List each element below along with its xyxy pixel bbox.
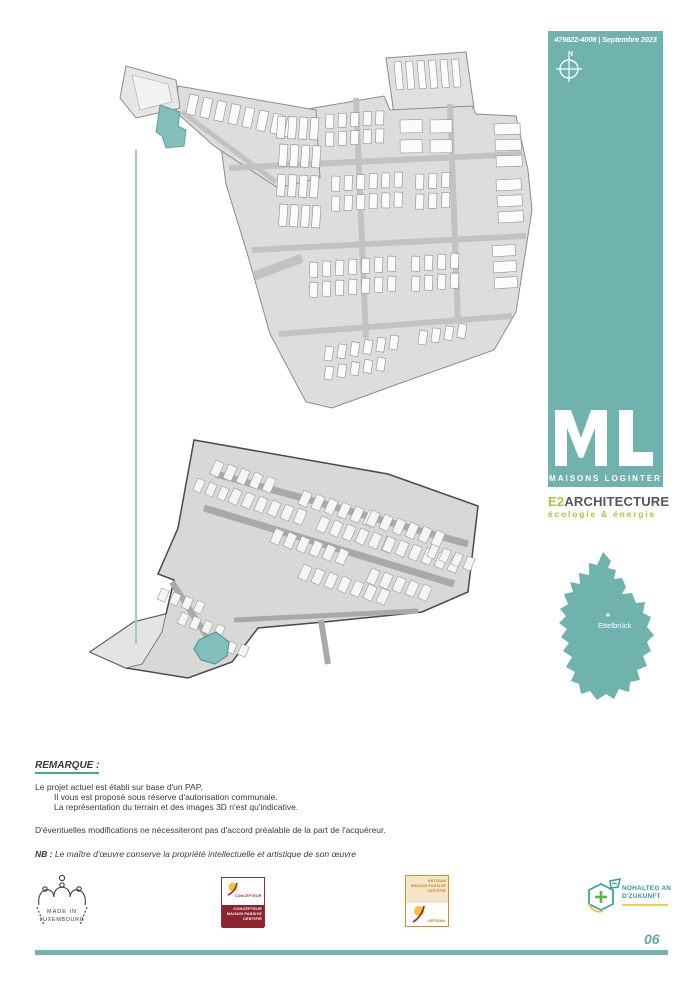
house-block	[374, 277, 383, 292]
artisan-bottom-label: ARTISAN	[428, 919, 445, 923]
svg-text:LUXEMBOURG: LUXEMBOURG	[39, 917, 84, 923]
remark-line-4: D'éventuelles modifications ne nécessite…	[35, 826, 515, 836]
artisan-band-line3: CERTIFIÉ	[406, 889, 446, 894]
house-block	[300, 205, 310, 228]
studio-tagline: écologie & énergie	[548, 509, 663, 519]
studio-logo: E2ARCHITECTURE	[548, 494, 663, 509]
house-block	[361, 258, 370, 273]
house-block	[338, 131, 346, 145]
house-block	[363, 359, 373, 373]
house-block	[363, 112, 371, 126]
house-block	[450, 273, 459, 288]
house-block	[322, 281, 331, 296]
house-block	[300, 145, 310, 168]
house-block	[289, 145, 299, 168]
house-block	[381, 173, 390, 188]
house-block	[276, 174, 286, 197]
house-block	[430, 140, 452, 153]
artisan-passive-logo: ARTISAN MAISON PASSIVE CERTIFIÉ ARTISAN	[405, 875, 449, 927]
sidebar: 479822-4008 | Septembre 2023 N MAISONS L…	[548, 31, 663, 487]
house-block	[337, 364, 347, 378]
nb-label: NB :	[35, 849, 52, 859]
house-block	[494, 276, 518, 289]
house-block	[428, 173, 437, 188]
house-block	[415, 194, 424, 209]
luxembourg-map: Ettelbrück	[548, 548, 666, 718]
brand-name: MAISONS LOGINTER	[548, 474, 663, 483]
house-block	[493, 260, 517, 273]
document-page: 479822-4008 | Septembre 2023 N MAISONS L…	[0, 0, 699, 988]
house-block	[309, 262, 318, 277]
house-block	[437, 274, 446, 289]
nohalteg-line1: NOHALTEG AN	[622, 885, 671, 893]
house-block	[411, 276, 420, 291]
house-block	[424, 255, 433, 270]
house-block	[495, 139, 521, 151]
house-block	[278, 204, 288, 227]
house-block	[326, 114, 334, 128]
house-block	[309, 282, 318, 297]
ml-logo	[555, 408, 656, 468]
house-block	[400, 120, 422, 133]
nohalteg-logo: NOHALTEG AN D'ZUKUNFT	[584, 878, 684, 922]
house-block	[363, 130, 371, 144]
nb-text: Le maître d'œuvre conserve la propriété …	[52, 849, 356, 859]
hexagon-plus-icon	[584, 878, 624, 920]
house-block	[309, 118, 319, 141]
house-block	[338, 113, 346, 127]
house-block	[387, 256, 396, 271]
house-block	[276, 116, 286, 139]
artisan-band: ARTISAN MAISON PASSIVE CERTIFIÉ	[406, 876, 448, 903]
page-number: 06	[644, 931, 660, 947]
house-block	[394, 172, 403, 187]
house-block	[369, 194, 378, 209]
house-block	[309, 176, 319, 199]
house-block	[287, 175, 297, 198]
footer-bar	[35, 950, 668, 955]
house-block	[498, 211, 524, 223]
house-block	[428, 193, 437, 208]
house-block	[430, 120, 452, 133]
house-block	[322, 261, 331, 276]
north-compass-icon: N	[553, 47, 587, 85]
house-block	[441, 172, 450, 187]
house-block	[381, 193, 390, 208]
city-label: Ettelbrück	[598, 621, 632, 630]
house-block	[497, 195, 523, 207]
house-block	[441, 192, 450, 207]
concepteur-logo-top: CONCEPTEUR	[222, 878, 264, 905]
house-block	[344, 195, 353, 210]
studio-prefix: E2	[548, 494, 564, 509]
remark-line-3: La représentation du terrain et des imag…	[54, 803, 515, 813]
house-block	[361, 278, 370, 293]
house-block	[157, 588, 169, 602]
house-block	[351, 130, 359, 144]
house-block	[326, 132, 334, 146]
house-block	[351, 112, 359, 126]
artisan-logo-bottom: ARTISAN	[406, 903, 448, 927]
site-plan-3d	[66, 416, 542, 690]
house-block	[335, 260, 344, 275]
nohalteg-line2: D'ZUKUNFT	[622, 893, 671, 901]
house-block	[348, 259, 357, 274]
house-block	[324, 366, 334, 380]
house-block	[496, 179, 522, 191]
house-block	[331, 196, 340, 211]
concepteur-top-label: CONCEPTEUR	[235, 894, 262, 898]
parcel-leader-line	[135, 150, 137, 644]
house-block	[376, 111, 384, 125]
house-block	[411, 256, 420, 271]
house-block	[387, 276, 396, 291]
house-block	[496, 155, 522, 167]
house-block	[374, 257, 383, 272]
house-block	[369, 174, 378, 189]
house-block	[437, 254, 446, 269]
house-block	[376, 357, 386, 371]
house-block	[424, 275, 433, 290]
house-block	[350, 362, 360, 376]
house-block	[287, 117, 297, 140]
house-block	[331, 176, 340, 191]
project-reference: 479822-4008 | Septembre 2023	[548, 35, 663, 44]
house-block	[298, 175, 308, 198]
remark-nb-line: NB : Le maître d'œuvre conserve la propr…	[35, 850, 515, 860]
house-block	[494, 123, 520, 135]
house-block	[356, 174, 365, 189]
remarks-title: REMARQUE :	[35, 760, 99, 774]
house-block	[356, 194, 365, 209]
concepteur-band: CONCEPTEUR MAISON PASSIVE CERTIFIÉ	[222, 905, 264, 928]
city-marker-dot	[606, 613, 609, 616]
house-block	[311, 206, 321, 229]
nohalteg-underline	[622, 904, 668, 906]
house-block	[450, 253, 459, 268]
studio-name: ARCHITECTURE	[564, 494, 669, 509]
concepteur-band-line3: CERTIFIÉ	[222, 917, 262, 922]
house-block	[415, 174, 424, 189]
house-block	[278, 144, 288, 167]
concepteur-passive-logo: CONCEPTEUR CONCEPTEUR MAISON PASSIVE CER…	[221, 877, 265, 927]
house-block	[400, 140, 422, 153]
house-block	[376, 129, 384, 143]
house-block	[394, 192, 403, 207]
nohalteg-text: NOHALTEG AN D'ZUKUNFT	[622, 885, 671, 901]
house-block	[344, 175, 353, 190]
house-block	[335, 280, 344, 295]
svg-text:MADE IN: MADE IN	[47, 909, 77, 915]
house-block	[298, 117, 308, 140]
passive-house-flame-icon	[411, 904, 427, 924]
house-block	[311, 146, 321, 169]
house-block	[289, 205, 299, 228]
house-block	[492, 244, 516, 257]
house-block	[348, 279, 357, 294]
remarks-section: REMARQUE : Le projet actuel est établi s…	[35, 760, 515, 860]
made-in-luxembourg-logo: MADE IN LUXEMBOURG	[30, 873, 94, 931]
